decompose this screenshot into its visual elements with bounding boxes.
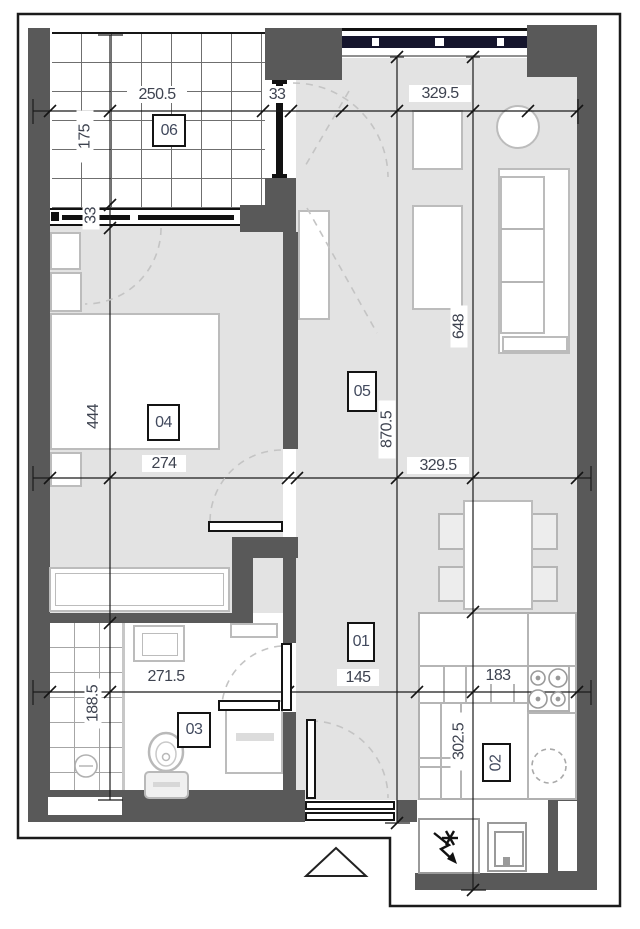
stove (527, 665, 570, 712)
room-label-bedroom: 04 (147, 404, 180, 441)
sofa-cushion-divider (501, 228, 544, 230)
dim-balcony-depth: 175 (77, 111, 94, 163)
kitchen-cabinet-divider (465, 666, 467, 702)
electrical-panel (418, 818, 480, 874)
dim-living-mid-width: 329.5 (407, 457, 469, 474)
kitchen-counter-line (528, 712, 576, 714)
floor-plan: 250.5 33 329.5 175 33 444 274 329.5 870.… (0, 0, 640, 929)
bath-shelf (230, 623, 278, 638)
dim-kitchen-width: 183 (477, 667, 519, 684)
wall-bedroom-hall-vertical (232, 558, 253, 623)
room-number: 06 (161, 122, 178, 140)
window-mullion (372, 38, 379, 46)
dining-chair (438, 513, 465, 550)
shower-glass (122, 623, 125, 790)
dim-bath-width: 271.5 (137, 668, 195, 685)
wall-bedroom-top-corner (240, 205, 296, 232)
kitchen-cabinet-divider (443, 666, 445, 702)
wall-bath-hall-upper (283, 558, 296, 643)
room-label-balcony: 06 (152, 114, 186, 147)
window-mullion (435, 38, 444, 46)
wall-bedroom-hall-horizontal (232, 537, 298, 558)
window-living-top (342, 28, 527, 58)
room-number: 02 (487, 754, 505, 771)
dim-bedroom-depth: 444 (85, 394, 102, 439)
dim-balcony-window: 33 (262, 86, 292, 103)
entrance-door-leaf (306, 719, 316, 799)
plant-table-circle (496, 105, 540, 149)
window-frame-line (342, 28, 527, 31)
door-glazing-bar (138, 215, 234, 220)
entrance-threshold (305, 801, 395, 810)
bedroom-cabinet (50, 232, 81, 270)
room-label-hall: 01 (347, 622, 375, 662)
dim-hall-width: 145 (337, 669, 379, 686)
wall-right (577, 25, 597, 890)
wall-utility-left-jamb (397, 800, 417, 822)
cabinet-tall (412, 205, 463, 310)
sofa-armrest (502, 336, 568, 352)
wall-left (28, 28, 50, 822)
entrance-threshold-outer (305, 812, 395, 821)
room-number: 01 (353, 633, 370, 651)
wall-utility-bottom (415, 873, 597, 890)
kitchen-counter-line (419, 702, 528, 704)
bathroom-door-leaf (281, 643, 292, 711)
washing-machine (225, 700, 283, 774)
window-sill-line (342, 55, 527, 57)
dim-bath-depth: 188.5 (85, 679, 102, 729)
nightstand (50, 272, 82, 312)
entrance-triangle-icon (306, 848, 366, 876)
room-label-living: 05 (347, 371, 377, 412)
washbasin (133, 625, 185, 662)
dim-kitchen-wall-length: 648 (451, 306, 468, 348)
dim-bedroom-width: 274 (142, 455, 186, 472)
dim-balcony-door: 33 (83, 202, 100, 230)
room-number: 03 (186, 721, 203, 739)
wall-top-right-corner (527, 25, 577, 77)
door-frame-end (51, 212, 59, 221)
wardrobe-inner-line (55, 573, 224, 606)
bed (50, 313, 220, 450)
tv-sideboard (298, 210, 330, 320)
kitchen-cabinet-divider (440, 703, 442, 799)
dim-balcony-width: 250.5 (127, 86, 187, 103)
wall-niche-bath (48, 797, 122, 815)
wardrobe (49, 567, 230, 612)
dim-living-length: 870.5 (379, 401, 396, 459)
bathroom-slider-leaf (218, 700, 280, 711)
sofa-cushion-divider (501, 281, 544, 283)
wall-balcony-right-top (265, 28, 342, 80)
sofa-cushions (500, 176, 545, 334)
balcony-door-band (50, 208, 240, 226)
utility-sink (487, 822, 527, 872)
wall-bath-top (50, 613, 232, 623)
wall-bath-hall-lower (283, 712, 296, 790)
bedroom-door-leaf (208, 521, 283, 532)
room-number: 05 (354, 383, 371, 401)
wall-bedroom-living (283, 232, 298, 449)
utility-sink-faucet (503, 857, 510, 867)
washbasin-bowl (142, 633, 178, 656)
window-frame-cap (272, 174, 287, 178)
room-number: 04 (155, 414, 172, 432)
nightstand (50, 452, 82, 487)
room-label-kitchen: 02 (482, 743, 511, 782)
dim-living-top-width: 329.5 (409, 85, 471, 102)
cabinet (412, 110, 463, 170)
dining-table (463, 500, 533, 610)
room-label-bath: 03 (177, 712, 211, 748)
washing-machine-label (236, 733, 274, 741)
dining-chair (438, 566, 465, 602)
window-mullion (497, 38, 504, 46)
wall-niche-utility (558, 801, 577, 871)
dim-kitchen-depth: 302.5 (451, 713, 468, 771)
